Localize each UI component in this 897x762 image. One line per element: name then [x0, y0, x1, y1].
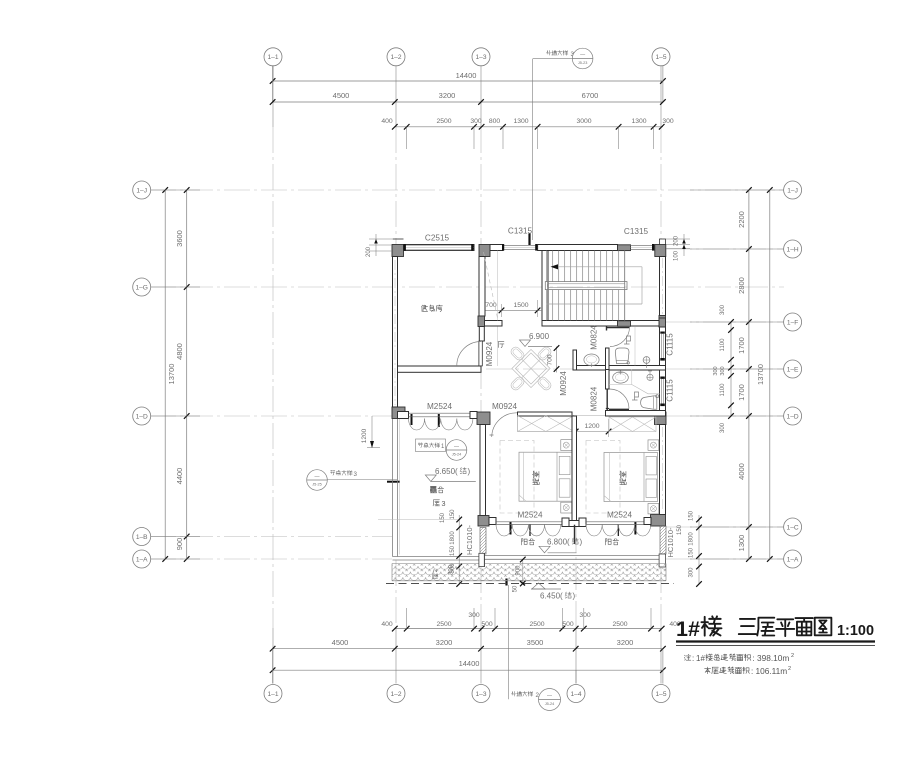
svg-text:1–2: 1–2 [390, 691, 401, 698]
svg-text:6.900: 6.900 [529, 332, 550, 341]
svg-text:HC1010-: HC1010- [465, 524, 474, 555]
svg-text:300: 300 [720, 366, 726, 375]
svg-text:2: 2 [433, 569, 439, 572]
svg-text:1–1: 1–1 [267, 691, 278, 698]
svg-text:1:100: 1:100 [837, 623, 874, 639]
svg-text:1–4: 1–4 [570, 691, 581, 698]
svg-text:3200: 3200 [617, 638, 634, 647]
svg-text:1200: 1200 [361, 428, 368, 443]
svg-text:4000: 4000 [737, 463, 746, 480]
svg-text:): ) [580, 538, 583, 547]
svg-text:—: — [315, 474, 320, 480]
svg-text:1–5: 1–5 [655, 54, 666, 61]
svg-text:1–3: 1–3 [475, 691, 486, 698]
svg-text:400: 400 [381, 621, 393, 628]
svg-text:3: 3 [442, 499, 446, 508]
svg-text:2200: 2200 [737, 211, 746, 228]
svg-text:150: 150 [689, 547, 695, 558]
svg-text:1–E: 1–E [787, 366, 799, 373]
svg-text:1300: 1300 [737, 535, 746, 552]
svg-text:300: 300 [720, 422, 726, 433]
svg-text:1–H: 1–H [787, 246, 799, 253]
svg-text:106.11m: 106.11m [756, 666, 788, 676]
svg-text:M2524: M2524 [427, 402, 452, 411]
svg-text:14400: 14400 [456, 71, 477, 80]
svg-text:300: 300 [579, 612, 591, 619]
svg-text:C2515: C2515 [425, 234, 450, 243]
svg-text:1#: 1# [676, 617, 700, 641]
svg-text:—: — [454, 444, 459, 450]
svg-text:): ) [573, 592, 576, 601]
svg-text:C1115: C1115 [666, 379, 675, 402]
svg-text:1700: 1700 [737, 337, 746, 354]
svg-text:1500: 1500 [513, 302, 528, 309]
svg-text:2500: 2500 [436, 621, 451, 628]
svg-text:M0924: M0924 [485, 341, 494, 366]
svg-text:13700: 13700 [167, 364, 176, 385]
svg-text:2500: 2500 [612, 621, 627, 628]
svg-text:1–A: 1–A [787, 556, 799, 563]
svg-text:500: 500 [562, 621, 574, 628]
svg-text:1–D: 1–D [787, 413, 799, 420]
svg-text:1–J: 1–J [136, 187, 147, 194]
svg-text:J5-23: J5-23 [578, 61, 588, 65]
svg-text:150: 150 [450, 509, 456, 520]
svg-text:J5-24: J5-24 [545, 702, 555, 706]
svg-text:300: 300 [449, 564, 455, 575]
svg-text:500: 500 [481, 621, 493, 628]
svg-text:J5-24: J5-24 [452, 453, 462, 457]
svg-text:1100: 1100 [720, 338, 726, 352]
svg-text:6.450(: 6.450( [540, 592, 563, 601]
svg-text:1300: 1300 [513, 118, 528, 125]
svg-text:1–B: 1–B [136, 534, 148, 541]
svg-text:150: 150 [689, 510, 695, 521]
svg-text:3600: 3600 [175, 230, 184, 247]
svg-text:): ) [468, 467, 471, 476]
svg-text:3200: 3200 [439, 91, 456, 100]
svg-text:1–2: 1–2 [390, 54, 401, 61]
svg-text:2: 2 [788, 666, 791, 672]
svg-text:398.10m: 398.10m [757, 653, 789, 663]
svg-text:1–F: 1–F [787, 319, 798, 326]
svg-text:1–3: 1–3 [475, 54, 486, 61]
svg-text:4500: 4500 [333, 91, 350, 100]
svg-text:M0924: M0924 [492, 402, 517, 411]
svg-text:1–D: 1–D [136, 413, 148, 420]
svg-text:2800: 2800 [737, 277, 746, 294]
svg-text:900: 900 [516, 565, 522, 576]
svg-text:1–J: 1–J [787, 187, 798, 194]
svg-text:J5-25: J5-25 [312, 483, 322, 487]
svg-text:1–A: 1–A [136, 556, 148, 563]
svg-text:13700: 13700 [756, 364, 765, 385]
svg-text:1800: 1800 [689, 532, 695, 546]
svg-text:3: 3 [354, 471, 358, 478]
svg-text:300: 300 [470, 118, 482, 125]
svg-text:1200: 1200 [584, 423, 599, 430]
svg-text:—: — [547, 693, 552, 699]
svg-text:1800: 1800 [450, 531, 456, 545]
svg-text:700: 700 [547, 354, 554, 366]
svg-text:6.650(: 6.650( [435, 467, 458, 476]
svg-text:M2524: M2524 [517, 511, 542, 520]
svg-text:300: 300 [468, 612, 480, 619]
svg-text:1–5: 1–5 [655, 691, 666, 698]
svg-text:M0824: M0824 [590, 325, 599, 350]
svg-text:200: 200 [674, 235, 680, 246]
svg-text:2500: 2500 [436, 118, 451, 125]
svg-text:2: 2 [791, 653, 794, 659]
svg-text:3500: 3500 [527, 638, 544, 647]
svg-text:1700: 1700 [737, 384, 746, 401]
svg-text:6.800(: 6.800( [547, 538, 570, 547]
svg-text::: : [751, 667, 753, 676]
svg-text:200: 200 [366, 246, 372, 257]
svg-text:3000: 3000 [576, 118, 591, 125]
svg-text:—: — [580, 52, 585, 58]
svg-text:C1115: C1115 [666, 333, 675, 356]
svg-text:M2524: M2524 [607, 511, 632, 520]
svg-text:150: 150 [440, 512, 446, 523]
svg-text:1–1: 1–1 [267, 54, 278, 61]
svg-text:M0924: M0924 [559, 371, 568, 396]
svg-text:300: 300 [713, 366, 719, 375]
svg-text:3200: 3200 [436, 638, 453, 647]
svg-text:1100: 1100 [720, 383, 726, 397]
svg-text:800: 800 [489, 118, 501, 125]
svg-text:400: 400 [381, 118, 393, 125]
svg-text:2500: 2500 [529, 621, 544, 628]
svg-text:4400: 4400 [175, 468, 184, 485]
svg-text::: : [753, 654, 755, 663]
svg-text:HC1010-: HC1010- [666, 527, 675, 558]
svg-text:C1315: C1315 [508, 227, 533, 236]
svg-text:C1315: C1315 [624, 227, 649, 236]
svg-text:100: 100 [674, 250, 680, 261]
svg-text:14400: 14400 [459, 659, 480, 668]
svg-text:1300: 1300 [631, 118, 646, 125]
svg-text:50: 50 [513, 585, 519, 592]
svg-text:4800: 4800 [175, 343, 184, 360]
svg-text:150: 150 [677, 524, 683, 535]
svg-text::: : [692, 654, 694, 663]
svg-text:300: 300 [689, 567, 695, 578]
svg-text:1#: 1# [696, 654, 705, 663]
svg-text:4500: 4500 [332, 638, 349, 647]
svg-text:1–C: 1–C [787, 524, 799, 531]
svg-text:900: 900 [175, 538, 184, 551]
svg-text:300: 300 [662, 118, 674, 125]
svg-text:M0824: M0824 [590, 386, 599, 411]
svg-text:6700: 6700 [582, 91, 599, 100]
svg-text:1–G: 1–G [135, 284, 147, 291]
svg-text:300: 300 [720, 304, 726, 315]
svg-text:150: 150 [450, 545, 456, 556]
